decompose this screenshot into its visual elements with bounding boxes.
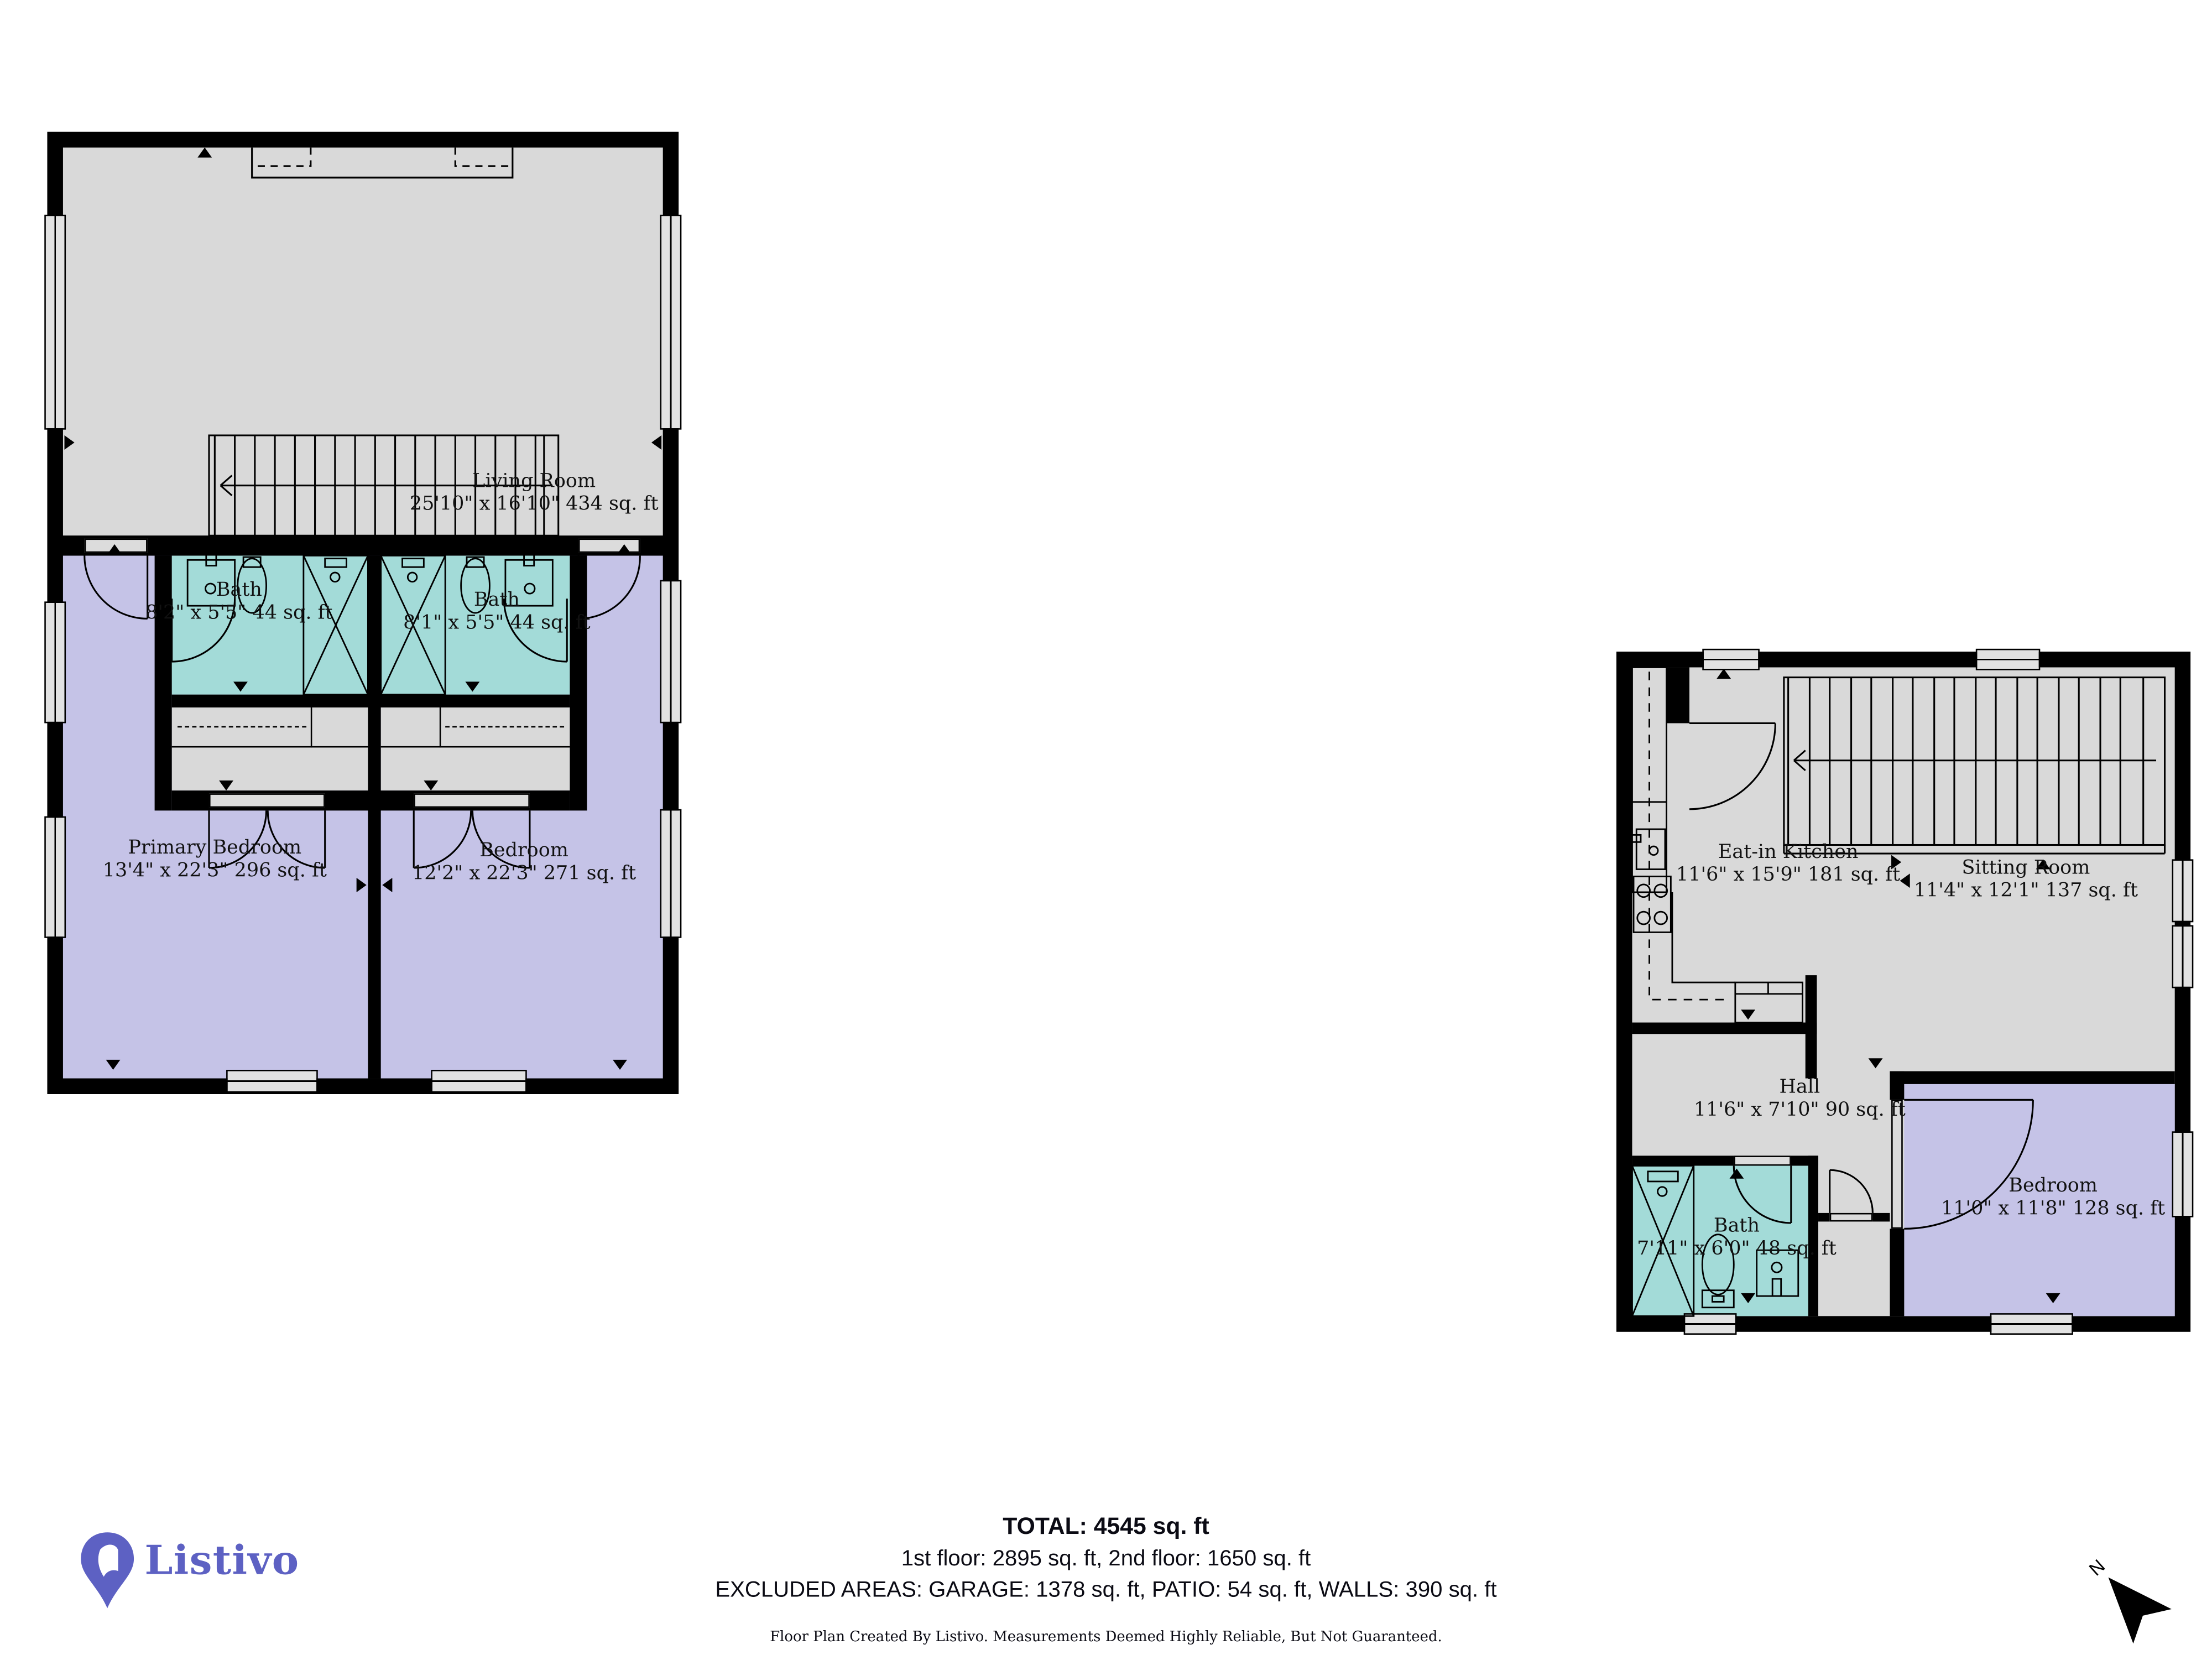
kitchen-counter [1632,667,1735,1000]
marker-divider-tick-right [382,878,392,892]
label-bath-right: Bath 8'1" x 5'5" 44 sq. ft [403,589,590,634]
label-bedroom: Bedroom 12'2" x 22'3" 271 sq. ft [412,839,636,885]
marker-top-wall [197,148,212,158]
room-dims: 8'2" x 5'5" 44 sq. ft [145,601,332,624]
marker-left-wall-tick [1622,720,1632,735]
marker-wall-tick-left [65,435,75,450]
floorplan-page: Living Room 25'10" x 16'10" 434 sq. ft B… [0,0,2212,1660]
room-name: Eat-in Kitchen [1676,841,1900,863]
total-area-text: TOTAL: 4545 sq. ft [0,1514,2212,1541]
marker-bath-left [233,681,248,691]
room-dims: 25'10" x 16'10" 434 sq. ft [410,493,659,516]
north-label: N [2085,1556,2109,1580]
marker-bath-sill [1730,1169,1744,1179]
label-eat-in-kitchen: Eat-in Kitchen 11'6" x 15'9" 181 sq. ft [1676,841,1900,887]
room-name: Living Room [410,470,659,492]
stove [1634,876,1671,932]
label-sitting-room: Sitting Room 11'4" x 12'1" 137 sq. ft [1914,856,2138,902]
marker-divider-tick-left [357,878,367,892]
room-dims: 12'2" x 22'3" 271 sq. ft [412,862,636,885]
door-adu-closet [1830,1170,1873,1213]
marker-top-window [1717,669,1731,679]
label-primary-bedroom: Primary Bedroom 13'4" x 22'3" 296 sq. ft [103,836,327,882]
floorplan-second-floor: Living Room 25'10" x 16'10" 434 sq. ft B… [47,132,679,1094]
marker-closet-left [219,780,233,790]
room-name: Bedroom [412,839,636,862]
marker-entry-right [617,544,632,554]
room-name: Bath [145,579,332,601]
marker-sitting-tick [1900,873,1910,888]
room-name: Primary Bedroom [103,836,327,859]
marker-bath-right [465,681,479,691]
label-living-room: Living Room 25'10" x 16'10" 434 sq. ft [410,470,659,516]
room-name: Bath [1637,1214,1837,1237]
marker-bath-floor [1741,1293,1755,1303]
label-adu-bedroom: Bedroom 11'0" x 11'8" 128 sq. ft [1941,1174,2165,1220]
room-dims: 11'6" x 15'9" 181 sq. ft [1676,863,1900,886]
room-dims: 11'4" x 12'1" 137 sq. ft [1914,880,2138,902]
room-dims: 11'6" x 7'10" 90 sq. ft [1694,1099,1906,1121]
door-primary-entry [85,556,148,619]
excluded-areas-text: EXCLUDED AREAS: GARAGE: 1378 sq. ft, PAT… [0,1578,2212,1604]
shower-left [304,556,368,695]
room-name: Hall [1694,1075,1906,1098]
kitchen-sink [1629,829,1665,869]
room-name: Bath [403,589,590,611]
door-adu-entry [1689,723,1775,809]
room-name: Sitting Room [1914,856,2138,879]
marker-entry-left [107,544,122,554]
label-adu-bath: Bath 7'11" x 6'0" 48 sq. ft [1637,1214,1837,1260]
north-arrow: N [2079,1544,2193,1658]
loft-outline [252,148,513,178]
marker-hall-passage [1869,1058,1883,1068]
disclaimer-text: Floor Plan Created By Listivo. Measureme… [0,1630,2212,1645]
marker-wall-tick-right [651,435,661,450]
adu-staircase [1784,678,2165,854]
label-hall: Hall 11'6" x 7'10" 90 sq. ft [1694,1075,1906,1121]
marker-bottom-right [613,1060,627,1070]
marker-bottom-left [106,1060,121,1070]
room-dims: 11'0" x 11'8" 128 sq. ft [1941,1197,2165,1220]
label-bath-left: Bath 8'2" x 5'5" 44 sq. ft [145,579,332,625]
marker-kitchen-wall [1741,1009,1755,1019]
room-dims: 8'1" x 5'5" 44 sq. ft [403,611,590,634]
room-name: Bedroom [1941,1174,2165,1197]
marker-closet-right [424,780,438,790]
room-dims: 7'11" x 6'0" 48 sq. ft [1637,1237,1837,1260]
floorplan-adu: Eat-in Kitchen 11'6" x 15'9" 181 sq. ft … [1616,652,2190,1332]
marker-bedroom-window [2046,1293,2060,1303]
room-dims: 13'4" x 22'3" 296 sq. ft [103,859,327,882]
floor-areas-text: 1st floor: 2895 sq. ft, 2nd floor: 1650 … [0,1547,2212,1573]
